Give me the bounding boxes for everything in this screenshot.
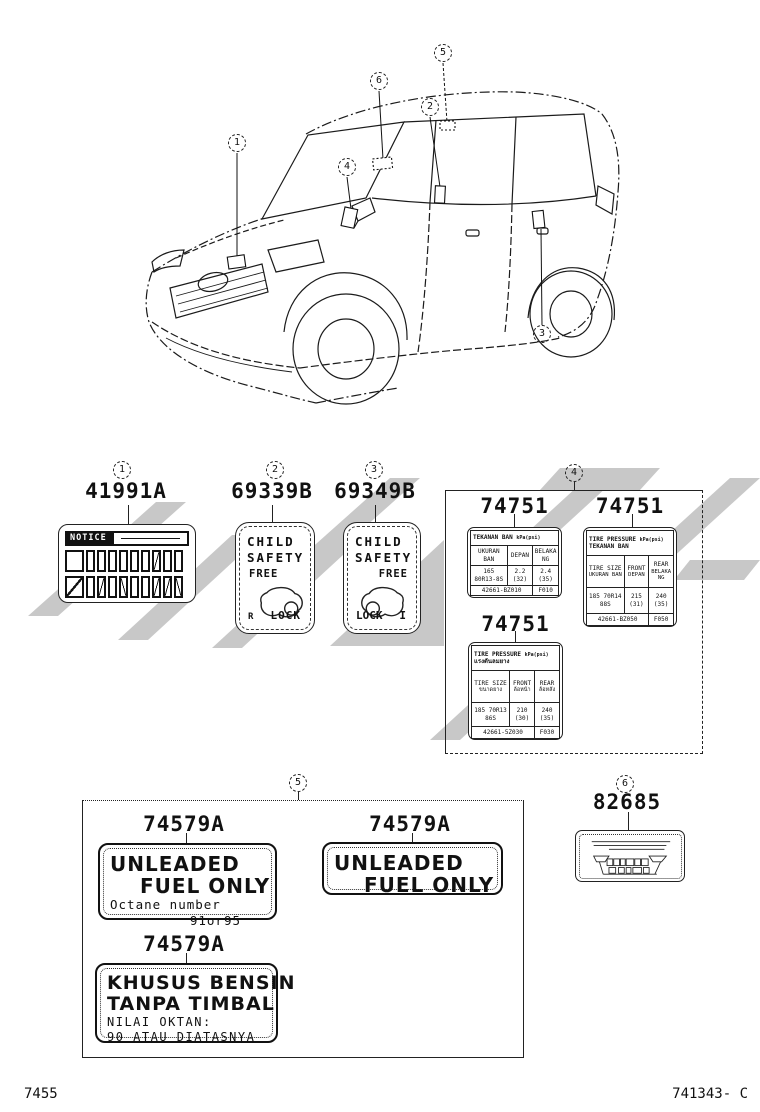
connector-line [632, 514, 633, 527]
connector-line [515, 631, 516, 642]
fuse-box-diagram-art [580, 835, 680, 879]
callout-6-vehicle: 6 [370, 72, 388, 90]
connector-line [128, 505, 129, 524]
child-safety-label-right: CHILD SAFETY FREE LOCK I [343, 522, 421, 634]
callout-6-section: 6 [616, 775, 634, 793]
free-text: FREE [249, 568, 310, 580]
tire-size-value: 185 70R14 88S [587, 588, 625, 614]
child-text: CHILD [355, 534, 416, 550]
tanpa-timbal-text: TANPA TIMBAL [107, 994, 266, 1015]
callout-2-vehicle: 2 [421, 98, 439, 116]
connector-line [514, 514, 515, 527]
callout-3-vehicle: 3 [533, 325, 551, 343]
child-text: CHILD [247, 534, 310, 550]
col-front-alt: DEPAN [626, 572, 648, 579]
connector-line [298, 792, 299, 800]
notice-header-text: NOTICE [65, 531, 112, 546]
connector-line [272, 505, 273, 522]
connector-line [574, 482, 575, 490]
col-front: DEPAN [507, 546, 533, 566]
front-pressure-value: 215 (31) [624, 588, 649, 614]
tire-pressure-label-thailand: TIRE PRESSURE kPa(psi) แรงดันลมยาง TIRE … [468, 642, 563, 740]
oktan-value-text: 90 ATAU DIATASNYA [107, 1030, 266, 1045]
part-number-74751-b: 74751 [583, 496, 677, 517]
unleaded-text: UNLEADED [110, 853, 265, 875]
callout-1-vehicle: 1 [228, 134, 246, 152]
lock-text: LOCK [271, 609, 302, 622]
tire-label-subtitle: แรงดันลมยาง [474, 658, 557, 665]
octane-number-text: Octane number [110, 897, 265, 913]
part-number-74579A-b: 74579A [360, 814, 460, 835]
safety-text: SAFETY [247, 550, 310, 566]
col-rear-alt: BELAKANG [650, 569, 672, 582]
part-number-41991A: 41991A [78, 481, 174, 502]
nilai-oktan-text: NILAI OKTAN: [107, 1015, 266, 1030]
col-rear-alt: ล้อหลัง [536, 687, 558, 694]
part-number-74579A-c: 74579A [134, 934, 234, 955]
col-front: FRONT [627, 565, 645, 572]
page-number: 7455 [24, 1086, 58, 1102]
tire-label-unit: kPa(psi) [525, 652, 549, 658]
tire-label-unit: kPa(psi) [640, 537, 664, 543]
callout-5-vehicle: 5 [434, 44, 452, 62]
tire-size-value: 165 80R13-8S [471, 566, 508, 586]
rear-pressure-value: 2.4 (35) [533, 566, 559, 586]
col-tire-size: TIRE SIZE [589, 565, 622, 572]
figure-code: 741343- C [658, 1086, 748, 1102]
part-number-69339B: 69339B [224, 481, 320, 502]
tire-label-title: TIRE PRESSURE [589, 536, 636, 543]
notice-row-2 [65, 576, 189, 598]
col-tire-size-alt: ขนาดยาง [473, 687, 508, 694]
notice-header: NOTICE [65, 531, 189, 546]
label-code: 42661-BZ010 [471, 586, 533, 596]
tire-label-unit: kPa(psi) [516, 535, 540, 541]
free-text: FREE [348, 568, 408, 580]
lock-text: LOCK [356, 609, 383, 622]
lever-mark: R [248, 612, 253, 622]
lever-mark: I [399, 609, 407, 622]
tire-pressure-label-export: TIRE PRESSURE kPa(psi) TEKANAN BAN TIRE … [583, 527, 677, 627]
parts-diagram-page: 1 2 3 4 5 6 1 41991A NOTICE 2 69339B CHI… [0, 0, 760, 1112]
khusus-bensin-label: KHUSUS BENSIN TANPA TIMBAL NILAI OKTAN: … [95, 963, 278, 1043]
col-rear: REAR [540, 680, 554, 687]
child-safety-label-left: CHILD SAFETY FREE R LOCK [235, 522, 315, 634]
col-tire-size-alt: UKURAN BAN [588, 572, 623, 579]
notice-blank-field [112, 531, 189, 546]
callout-4-section: 4 [565, 464, 583, 482]
col-rear: REAR [654, 561, 668, 568]
col-front: FRONT [513, 680, 531, 687]
connector-line [628, 812, 629, 830]
fuse-box-diagram-label [575, 830, 685, 882]
callout-leader-lines [237, 63, 542, 325]
front-pressure-value: 2.2 (32) [507, 566, 533, 586]
khusus-bensin-text: KHUSUS BENSIN [107, 973, 266, 994]
tire-size-value: 185 70R13 86S [472, 703, 510, 727]
notice-row-1 [65, 550, 189, 572]
col-tire-size: UKURAN BAN [471, 546, 508, 566]
callout-5-section: 5 [289, 774, 307, 792]
callout-3-section: 3 [365, 461, 383, 479]
unleaded-text: UNLEADED [334, 852, 491, 874]
unleaded-fuel-label-plain: UNLEADED FUEL ONLY [322, 842, 503, 895]
tire-label-subtitle: TEKANAN BAN [589, 543, 671, 550]
connector-line [186, 833, 187, 843]
connector-line [186, 953, 187, 963]
label-suffix: F010 [533, 586, 559, 596]
callout-1-section: 1 [113, 461, 131, 479]
connector-line [375, 505, 376, 522]
fuel-only-text: FUEL ONLY [334, 874, 491, 896]
tire-pressure-label-indonesia: TEKANAN BAN kPa(psi) UKURAN BAN DEPAN BE… [467, 527, 562, 598]
callout-4-vehicle: 4 [338, 158, 356, 176]
tire-label-title: TEKANAN BAN [473, 534, 513, 541]
vehicle-outline-drawing [0, 0, 760, 460]
notice-label: NOTICE [58, 524, 196, 603]
callout-2-section: 2 [266, 461, 284, 479]
rear-pressure-value: 240 (35) [535, 703, 560, 727]
safety-text: SAFETY [355, 550, 416, 566]
label-code: 42661-BZ050 [587, 614, 649, 626]
connector-line [412, 833, 413, 842]
label-suffix: F030 [535, 727, 560, 739]
part-number-82685: 82685 [577, 792, 677, 813]
part-number-69349B: 69349B [327, 481, 423, 502]
col-tire-size: TIRE SIZE [474, 680, 507, 687]
octane-value-text: 91or95 [110, 913, 265, 929]
label-code: 42661-5Z030 [472, 727, 535, 739]
col-front-alt: ล้อหน้า [511, 687, 533, 694]
tire-label-title: TIRE PRESSURE [474, 651, 521, 658]
col-rear: BELAKANG [533, 546, 559, 566]
rear-pressure-value: 240 (35) [649, 588, 674, 614]
fuel-only-text: FUEL ONLY [110, 875, 265, 897]
front-pressure-value: 210 (30) [510, 703, 535, 727]
label-suffix: F050 [649, 614, 674, 626]
unleaded-fuel-label-octane: UNLEADED FUEL ONLY Octane number 91or95 [98, 843, 277, 920]
part-number-74579A-a: 74579A [134, 814, 234, 835]
